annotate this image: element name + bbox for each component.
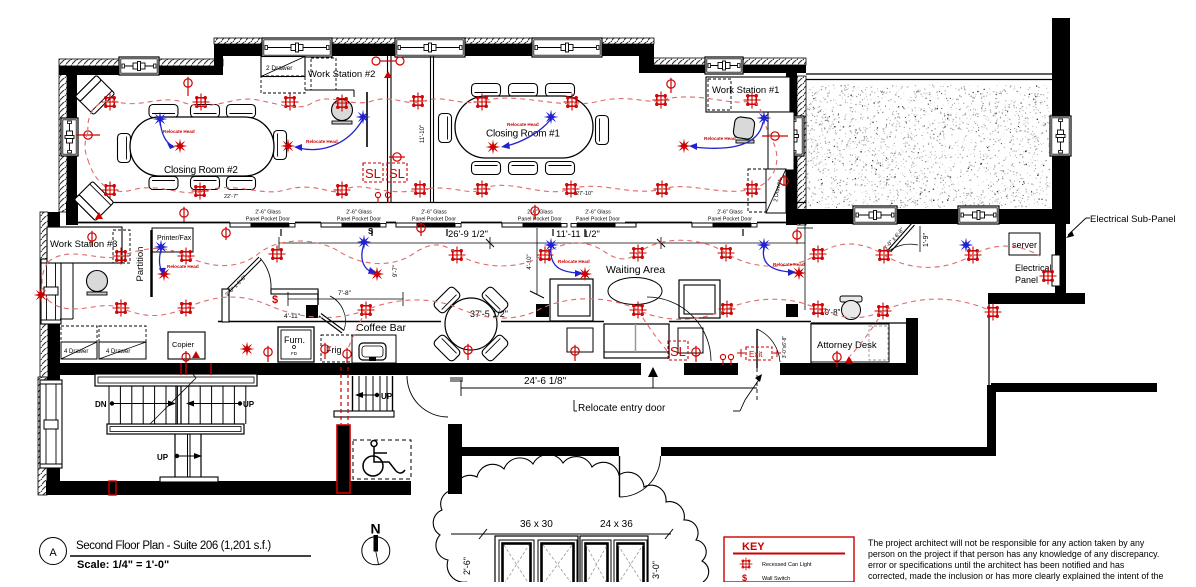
svg-text:Wall Switch: Wall Switch	[762, 576, 790, 582]
svg-text:1'-9": 1'-9"	[923, 233, 930, 247]
svg-text:FD: FD	[291, 351, 298, 356]
svg-text:SL: SL	[670, 344, 686, 359]
svg-text:2'-6" Glass: 2'-6" Glass	[421, 210, 447, 216]
svg-text:Furn.: Furn.	[284, 335, 305, 345]
svg-text:Exit: Exit	[749, 350, 763, 359]
svg-text:4'-11": 4'-11"	[284, 313, 301, 320]
svg-text:4 Drawer: 4 Drawer	[64, 349, 88, 355]
svg-text:Relocate Head: Relocate Head	[306, 139, 338, 144]
svg-text:27'-10": 27'-10"	[576, 191, 593, 197]
svg-text:error or specifications until: error or specifications until the archit…	[868, 560, 1125, 570]
svg-text:corrected, made the inclusion: corrected, made the inclusion or has mor…	[868, 571, 1163, 581]
svg-text:Panel Pocket Door: Panel Pocket Door	[246, 217, 290, 223]
svg-text:A: A	[49, 547, 57, 559]
svg-text:Printer/Fax: Printer/Fax	[157, 235, 192, 242]
svg-text:Coffee Bar: Coffee Bar	[356, 322, 407, 334]
svg-text:9'-7": 9'-7"	[393, 265, 399, 277]
svg-text:3'-0": 3'-0"	[651, 561, 661, 579]
svg-text:Relocate entry door: Relocate entry door	[578, 403, 666, 414]
svg-text:Relocate Head: Relocate Head	[163, 129, 195, 134]
svg-text:Work Station #2: Work Station #2	[308, 69, 375, 80]
svg-text:7'-8": 7'-8"	[338, 290, 352, 297]
svg-text:Closing Room #2: Closing Room #2	[164, 165, 238, 176]
svg-text:Copier: Copier	[172, 340, 195, 349]
svg-text:S: S	[368, 227, 374, 236]
svg-text:2'-6" Glass: 2'-6" Glass	[346, 210, 372, 216]
svg-text:26'-9 1/2": 26'-9 1/2"	[448, 229, 488, 240]
svg-text:$: $	[742, 573, 747, 582]
svg-text:Work Station #3: Work Station #3	[50, 239, 117, 250]
svg-text:Panel Pocket Door: Panel Pocket Door	[412, 217, 456, 223]
svg-text:Panel Pocket Door: Panel Pocket Door	[337, 217, 381, 223]
svg-text:Attorney Desk: Attorney Desk	[817, 340, 877, 351]
svg-text:Relocate Head: Relocate Head	[773, 262, 805, 267]
svg-text:2'-6": 2'-6"	[462, 557, 472, 575]
svg-text:SL: SL	[389, 166, 405, 181]
svg-text:24'-6 1/8": 24'-6 1/8"	[524, 376, 567, 387]
svg-text:UP: UP	[157, 453, 169, 462]
svg-text:Panel Pocket Door: Panel Pocket Door	[708, 217, 752, 223]
svg-text:Panel Pocket Door: Panel Pocket Door	[576, 217, 620, 223]
svg-text:3'-0"x6'-8": 3'-0"x6'-8"	[782, 336, 788, 359]
svg-text:Relocate Head: Relocate Head	[507, 122, 539, 127]
svg-text:Recessed Can Light: Recessed Can Light	[762, 562, 812, 568]
svg-text:Panel Pocket Door: Panel Pocket Door	[518, 217, 562, 223]
svg-text:22'-7": 22'-7"	[224, 194, 238, 200]
svg-text:KEY: KEY	[742, 541, 765, 553]
svg-text:Waiting Area: Waiting Area	[606, 264, 665, 276]
svg-text:Closing Room #1: Closing Room #1	[486, 129, 560, 140]
svg-text:11'-11 1/2": 11'-11 1/2"	[556, 229, 600, 240]
svg-text:N: N	[370, 521, 380, 537]
svg-text:Electrical Sub-Panel: Electrical Sub-Panel	[1090, 214, 1176, 225]
svg-text:24 x 36: 24 x 36	[600, 519, 633, 530]
svg-text:36 x 30: 36 x 30	[520, 519, 553, 530]
svg-text:2 Drawer: 2 Drawer	[266, 65, 293, 72]
svg-text:Scale: 1/4" = 1'-0": Scale: 1/4" = 1'-0"	[77, 559, 169, 571]
svg-text:Work Station #1: Work Station #1	[712, 85, 779, 96]
svg-text:DN: DN	[95, 400, 107, 409]
svg-text:Relocate Head: Relocate Head	[704, 136, 736, 141]
svg-text:2'-6" Glass: 2'-6" Glass	[717, 210, 743, 216]
svg-text:Panel: Panel	[1015, 275, 1038, 285]
svg-text:2'-6" Glass: 2'-6" Glass	[585, 210, 611, 216]
svg-text:$: $	[272, 294, 278, 306]
svg-text:UP: UP	[243, 400, 255, 409]
svg-text:2'-6" Glass: 2'-6" Glass	[255, 210, 281, 216]
svg-text:UP: UP	[381, 392, 393, 401]
svg-text:11'-10": 11'-10"	[420, 125, 426, 143]
svg-text:Relocate Head: Relocate Head	[167, 264, 199, 269]
svg-text:SL: SL	[365, 166, 381, 181]
svg-text:person on the project if that: person on the project if that person has…	[868, 549, 1159, 559]
svg-text:Second Floor Plan - Suite 206: Second Floor Plan - Suite 206 (1,201 s.f…	[76, 540, 271, 552]
svg-text:4 Drawer: 4 Drawer	[106, 349, 130, 355]
svg-text:Relocate Head: Relocate Head	[558, 259, 590, 264]
svg-text:The project architect will not: The project architect will not be respon…	[868, 538, 1145, 548]
